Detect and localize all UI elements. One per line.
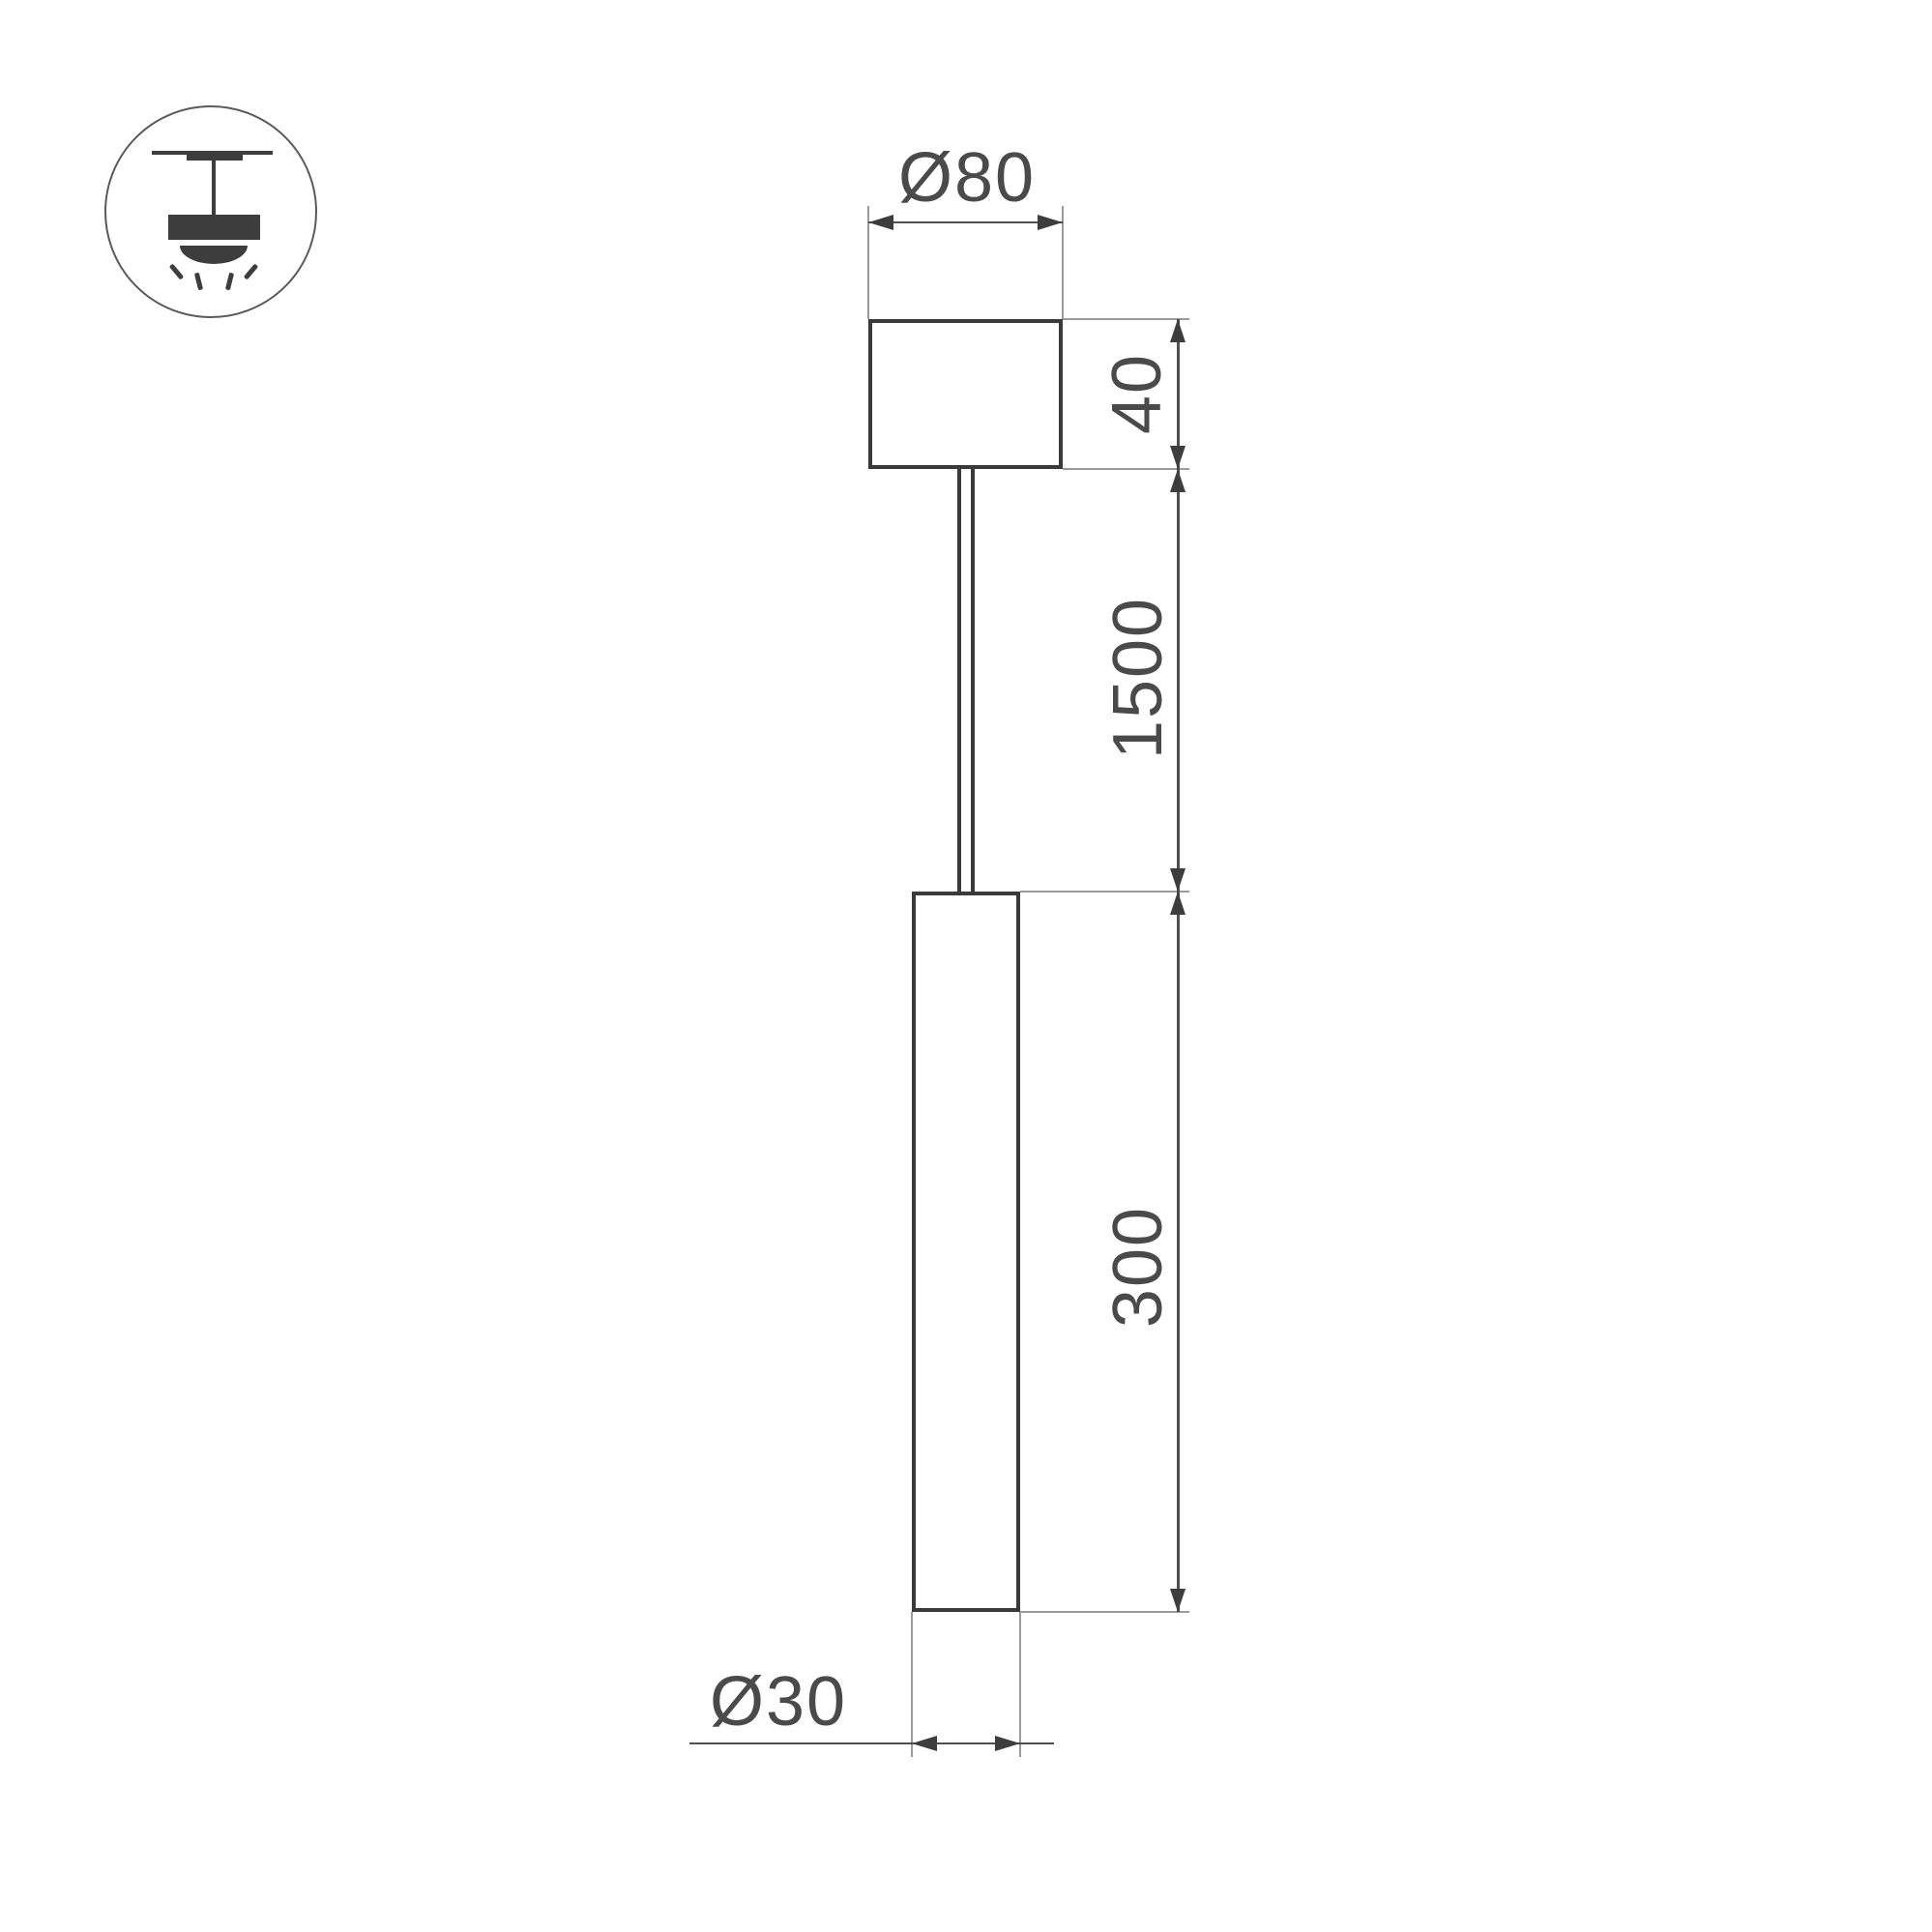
dim-label-tube-length: 300 [1098,1206,1178,1328]
arrowhead-right-icon [995,1736,1020,1751]
extension-line [1020,891,1189,893]
arrowhead-right-icon [1038,215,1063,230]
arrowhead-up-icon [1170,892,1186,915]
canopy-outline [868,319,1063,469]
dimension-line [1177,319,1180,1612]
dim-label-tube-diameter: Ø30 [710,1662,847,1742]
suspension-rod [212,161,216,215]
lamp-body [168,215,260,240]
arrowhead-down-icon [1170,1589,1186,1612]
technical-drawing-canvas: Ø80 40 1500 300 Ø30 [0,0,1932,1932]
dim-label-suspension-length: 1500 [1098,597,1178,759]
suspension-wire [957,469,975,892]
arrowhead-left-icon [868,215,893,230]
dim-label-canopy-height: 40 [1098,353,1177,434]
icon-circle [104,105,317,318]
tube-outline [912,892,1020,1612]
arrowhead-down-icon [1170,868,1186,892]
arrowhead-left-icon [912,1736,937,1751]
arrowhead-up-icon [1170,469,1186,492]
dimension-line [868,221,1063,223]
extension-line [1020,1611,1189,1613]
arrowhead-up-icon [1170,319,1186,342]
arrowhead-down-icon [1170,446,1186,469]
dim-label-canopy-diameter: Ø80 [898,138,1036,218]
